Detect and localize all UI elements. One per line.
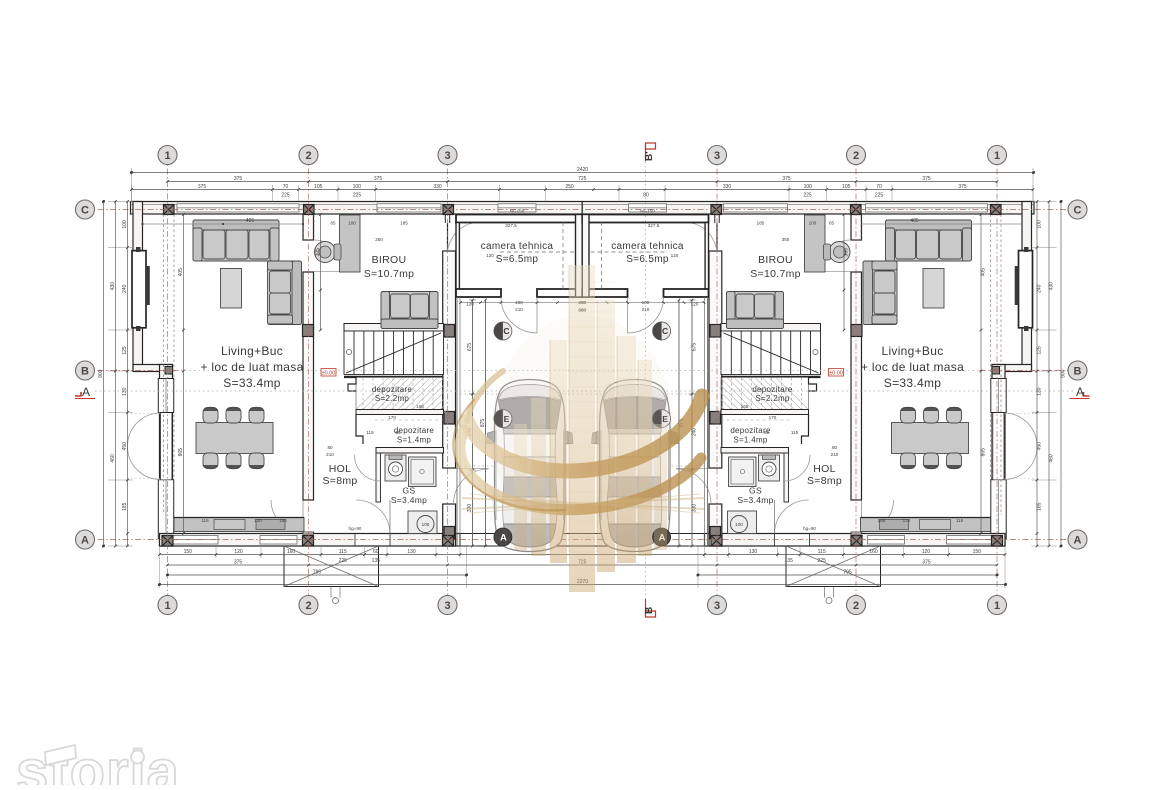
svg-text:375: 375 [782, 176, 791, 182]
svg-text:100: 100 [422, 522, 430, 527]
svg-text:S=2.2mp: S=2.2mp [375, 394, 410, 403]
svg-text:160: 160 [869, 549, 878, 555]
svg-text:NG150: NG150 [510, 209, 525, 214]
svg-text:80: 80 [832, 445, 838, 450]
svg-text:170: 170 [388, 415, 396, 420]
svg-text:120: 120 [691, 302, 699, 307]
svg-text:S=1.4mp: S=1.4mp [733, 436, 768, 445]
svg-text:375: 375 [922, 176, 931, 182]
svg-text:185: 185 [122, 502, 128, 511]
svg-text:1: 1 [164, 600, 170, 612]
svg-text:1: 1 [164, 150, 170, 162]
svg-text:A: A [1076, 385, 1084, 399]
svg-text:225: 225 [803, 193, 812, 199]
svg-text:210: 210 [831, 452, 839, 457]
svg-text:S=3.4mp: S=3.4mp [391, 495, 427, 505]
svg-text:225: 225 [875, 193, 884, 199]
svg-text:C: C [1074, 205, 1082, 217]
svg-text:S=33.4mp: S=33.4mp [884, 376, 941, 390]
svg-text:S=8mp: S=8mp [807, 475, 842, 487]
svg-text:Living+Buc: Living+Buc [881, 344, 943, 358]
svg-text:375: 375 [198, 184, 207, 190]
svg-text:165: 165 [279, 518, 287, 523]
svg-text:70: 70 [283, 184, 289, 190]
svg-text:350: 350 [375, 237, 383, 242]
svg-text:405: 405 [246, 218, 255, 224]
svg-text:375: 375 [374, 176, 383, 182]
svg-text:2: 2 [305, 600, 311, 612]
svg-text:795: 795 [843, 570, 852, 576]
svg-text:105: 105 [842, 184, 851, 190]
svg-text:120: 120 [466, 302, 474, 307]
svg-text:250: 250 [565, 184, 574, 190]
svg-text:185: 185 [400, 221, 408, 226]
svg-text:225: 225 [281, 193, 290, 199]
svg-text:900: 900 [98, 369, 104, 378]
svg-text:2: 2 [853, 600, 859, 612]
svg-text:A: A [1074, 535, 1082, 547]
svg-text:S=6.5mp: S=6.5mp [496, 254, 539, 265]
svg-text:+ loc de luat masa: + loc de luat masa [200, 360, 303, 374]
svg-text:460: 460 [110, 454, 116, 463]
svg-text:A: A [82, 385, 90, 399]
svg-text:100: 100 [122, 220, 128, 229]
svg-text:GS: GS [749, 486, 762, 496]
svg-text:±0.00: ±0.00 [322, 371, 336, 377]
svg-text:240: 240 [1037, 284, 1043, 293]
svg-text:depozitare: depozitare [730, 426, 771, 435]
svg-text:225: 225 [353, 193, 362, 199]
svg-text:100: 100 [353, 184, 362, 190]
svg-text:130: 130 [122, 387, 128, 396]
svg-text:±0.00: ±0.00 [829, 371, 843, 377]
svg-text:depozitare: depozitare [752, 385, 793, 394]
svg-text:3: 3 [714, 600, 720, 612]
svg-text:120: 120 [486, 253, 494, 258]
svg-text:160: 160 [287, 549, 296, 555]
svg-text:100: 100 [809, 221, 817, 226]
svg-text:430: 430 [110, 282, 116, 291]
svg-text:100: 100 [804, 184, 813, 190]
svg-text:240: 240 [122, 284, 128, 293]
svg-text:S=3.4mp: S=3.4mp [737, 495, 773, 505]
svg-text:100: 100 [1037, 220, 1043, 229]
svg-text:135: 135 [372, 558, 381, 564]
svg-text:100: 100 [515, 300, 523, 305]
svg-text:1: 1 [994, 600, 1000, 612]
svg-text:camera tehnica: camera tehnica [481, 241, 554, 252]
svg-text:165: 165 [741, 404, 749, 409]
svg-text:120: 120 [254, 518, 262, 523]
svg-text:405: 405 [178, 268, 184, 277]
svg-text:125: 125 [122, 346, 128, 355]
svg-text:120: 120 [671, 253, 679, 258]
svg-text:3: 3 [444, 600, 450, 612]
svg-text:100: 100 [348, 221, 356, 226]
svg-text:375: 375 [234, 176, 243, 182]
svg-text:130: 130 [1037, 387, 1043, 396]
svg-text:storia: storia [16, 739, 180, 785]
svg-text:115: 115 [366, 430, 374, 435]
svg-text:725: 725 [578, 176, 587, 182]
svg-text:S=2.2mp: S=2.2mp [755, 394, 790, 403]
svg-text:1: 1 [994, 150, 1000, 162]
svg-text:225: 225 [818, 558, 827, 564]
svg-text:60: 60 [373, 549, 379, 555]
svg-text:HOL: HOL [813, 463, 836, 475]
svg-text:65: 65 [829, 221, 835, 226]
svg-text:430: 430 [1049, 282, 1055, 291]
svg-text:375: 375 [234, 560, 243, 566]
svg-text:2: 2 [853, 150, 859, 162]
svg-text:A: A [500, 532, 507, 543]
svg-text:C: C [662, 326, 668, 336]
svg-text:795: 795 [313, 570, 322, 576]
svg-text:350: 350 [782, 237, 790, 242]
svg-text:450: 450 [122, 442, 128, 451]
svg-text:150: 150 [184, 549, 193, 555]
svg-text:BIROU: BIROU [758, 254, 793, 266]
svg-text:S=33.4mp: S=33.4mp [223, 376, 280, 390]
svg-text:900: 900 [1061, 369, 1067, 378]
svg-text:130: 130 [749, 549, 758, 555]
svg-text:100: 100 [642, 300, 650, 305]
svg-text:120: 120 [234, 549, 243, 555]
svg-text:3: 3 [714, 150, 720, 162]
svg-text:120: 120 [903, 518, 911, 523]
svg-text:115: 115 [339, 549, 347, 555]
svg-text:375: 375 [958, 184, 967, 190]
svg-text:GS: GS [403, 486, 416, 496]
svg-text:80: 80 [643, 193, 649, 199]
svg-text:135: 135 [785, 558, 794, 564]
svg-text:165: 165 [878, 518, 886, 523]
svg-text:BIROU: BIROU [372, 254, 407, 266]
svg-text:327.5: 327.5 [505, 223, 517, 228]
svg-text:A: A [81, 535, 89, 547]
svg-text:80: 80 [327, 445, 333, 450]
svg-text:675: 675 [467, 343, 473, 352]
svg-text:B: B [1074, 366, 1082, 378]
svg-text:125: 125 [1037, 346, 1043, 355]
svg-text:450: 450 [1037, 442, 1043, 451]
svg-text:3: 3 [444, 150, 450, 162]
svg-text:105: 105 [314, 184, 323, 190]
svg-text:depozitare: depozitare [372, 385, 413, 394]
svg-text:865: 865 [178, 448, 184, 457]
svg-text:115: 115 [201, 518, 209, 523]
svg-text:120: 120 [922, 549, 931, 555]
svg-text:130: 130 [407, 549, 416, 555]
svg-text:185: 185 [757, 221, 765, 226]
svg-text:hg=90: hg=90 [803, 526, 816, 531]
svg-text:+ loc de luat masa: + loc de luat masa [861, 360, 964, 374]
svg-text:S=6.5mp: S=6.5mp [626, 254, 669, 265]
svg-text:327.5: 327.5 [648, 223, 660, 228]
svg-text:185: 185 [1037, 502, 1043, 511]
svg-text:B: B [81, 366, 89, 378]
svg-text:HOL: HOL [329, 463, 352, 475]
svg-text:375: 375 [922, 560, 931, 566]
svg-text:150: 150 [973, 549, 982, 555]
svg-text:305: 305 [315, 248, 321, 257]
svg-text:C: C [503, 326, 509, 336]
svg-text:305: 305 [844, 248, 850, 257]
svg-text:405: 405 [981, 268, 987, 277]
svg-text:225: 225 [339, 558, 348, 564]
svg-text:330: 330 [433, 184, 442, 190]
svg-text:S=1.4mp: S=1.4mp [397, 436, 432, 445]
svg-text:460: 460 [1049, 454, 1055, 463]
svg-text:115: 115 [791, 430, 799, 435]
svg-text:875: 875 [480, 419, 486, 428]
svg-text:2420: 2420 [577, 167, 588, 173]
svg-text:100: 100 [735, 522, 743, 527]
svg-text:Living+Buc: Living+Buc [221, 344, 283, 358]
svg-text:depozitare: depozitare [394, 426, 435, 435]
svg-text:210: 210 [515, 307, 523, 312]
svg-text:405: 405 [910, 218, 919, 224]
svg-text:865: 865 [981, 448, 987, 457]
svg-text:S=10.7mp: S=10.7mp [364, 268, 415, 280]
svg-text:210: 210 [326, 452, 334, 457]
svg-text:C: C [81, 205, 89, 217]
svg-text:70: 70 [876, 184, 882, 190]
svg-text:camera tehnica: camera tehnica [611, 241, 684, 252]
svg-text:S=8mp: S=8mp [322, 475, 357, 487]
svg-text:NG150: NG150 [640, 209, 655, 214]
svg-text:675: 675 [692, 343, 698, 352]
svg-text:170: 170 [769, 415, 777, 420]
svg-text:165: 165 [416, 404, 424, 409]
svg-text:B': B' [644, 151, 655, 161]
svg-text:115: 115 [956, 518, 964, 523]
svg-text:115: 115 [818, 549, 826, 555]
svg-text:B: B [644, 607, 655, 614]
svg-text:hg=90: hg=90 [349, 526, 362, 531]
svg-text:210: 210 [642, 307, 650, 312]
svg-text:S=10.7mp: S=10.7mp [750, 268, 801, 280]
svg-text:330: 330 [723, 184, 732, 190]
svg-text:2: 2 [305, 150, 311, 162]
svg-text:65: 65 [330, 221, 336, 226]
